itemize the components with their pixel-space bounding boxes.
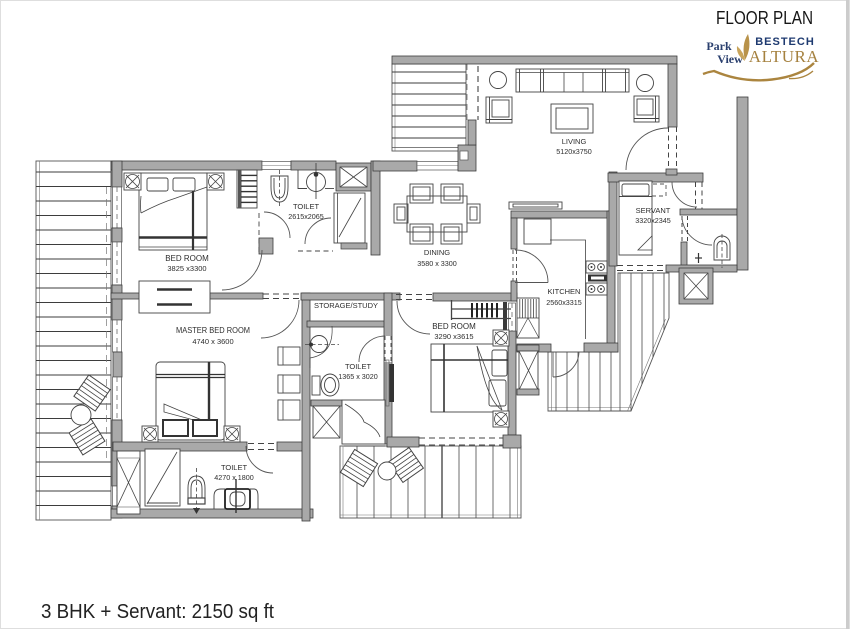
- svg-text:3825 x3300: 3825 x3300: [167, 264, 206, 273]
- svg-text:STORAGE/STUDY: STORAGE/STUDY: [314, 301, 378, 310]
- svg-text:TOILET: TOILET: [345, 362, 372, 371]
- svg-text:2615x2065: 2615x2065: [288, 212, 324, 221]
- svg-text:3320x2345: 3320x2345: [635, 216, 671, 225]
- svg-text:1365 x 3020: 1365 x 3020: [338, 372, 378, 381]
- svg-text:FLOOR PLAN: FLOOR PLAN: [716, 8, 813, 28]
- svg-text:5120x3750: 5120x3750: [556, 147, 592, 156]
- svg-text:3290 x3615: 3290 x3615: [434, 332, 473, 341]
- svg-text:Park: Park: [706, 39, 732, 53]
- svg-text:2560x3315: 2560x3315: [546, 298, 582, 307]
- svg-text:LIVING: LIVING: [562, 137, 587, 146]
- svg-text:3580 x 3300: 3580 x 3300: [417, 259, 457, 268]
- svg-text:MASTER BED ROOM: MASTER BED ROOM: [176, 326, 250, 335]
- svg-text:TOILET: TOILET: [221, 463, 248, 472]
- svg-text:DINING: DINING: [424, 248, 450, 257]
- svg-text:BED ROOM: BED ROOM: [165, 254, 209, 263]
- svg-text:3 BHK + Servant: 2150 sq ft: 3 BHK + Servant: 2150 sq ft: [41, 601, 274, 623]
- svg-text:TOILET: TOILET: [293, 202, 320, 211]
- svg-text:4740 x 3600: 4740 x 3600: [192, 337, 233, 346]
- svg-text:BED ROOM: BED ROOM: [432, 322, 476, 331]
- svg-text:ALTURA: ALTURA: [749, 47, 820, 66]
- svg-text:KITCHEN: KITCHEN: [548, 287, 581, 296]
- svg-text:SERVANT: SERVANT: [636, 206, 671, 215]
- svg-text:4270 x 1800: 4270 x 1800: [214, 473, 254, 482]
